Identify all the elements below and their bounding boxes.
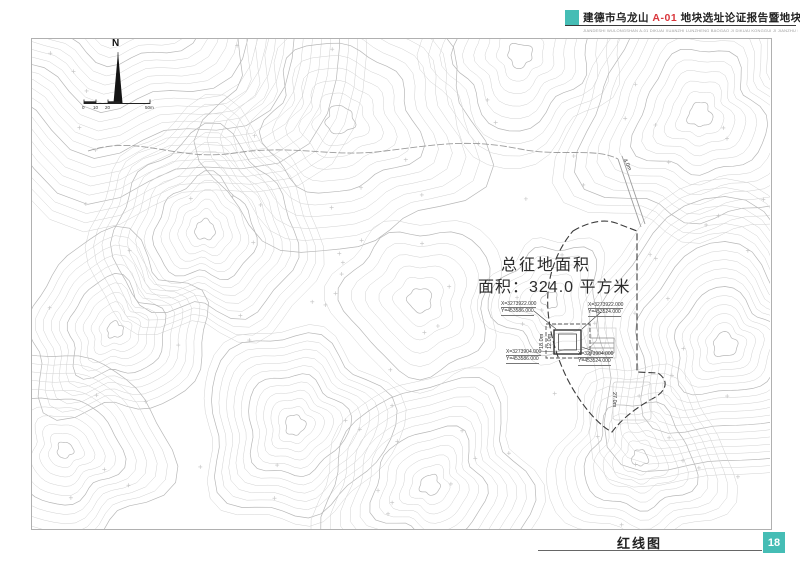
access-road — [88, 143, 645, 227]
survey-cross-marks — [48, 44, 766, 527]
header-accent-square — [565, 10, 579, 25]
site-plan-canvas — [0, 0, 800, 566]
title-suffix: 地块选址论证报告暨地块控规及建筑设计方案 — [681, 12, 800, 24]
footer-rule — [538, 550, 762, 551]
land-area-title: 总征地面积 — [501, 251, 591, 275]
scale-label-10: 10 — [93, 105, 98, 110]
corner-coordinate-se: X=3273904.000 Y=453524.000 — [578, 351, 613, 366]
corner-coordinate-ne: X=3273922.000 Y=453524.000 — [588, 302, 623, 317]
corner-coordinate-nw: X=3273922.000 Y=453586.000 — [501, 301, 536, 316]
dimension-edge: 27.0m — [611, 392, 617, 407]
scale-label-0: 0 — [82, 105, 85, 110]
header-rule — [565, 25, 796, 26]
document-title: 建德市乌龙山 A-01 地块选址论证报告暨地块控规及建筑设计方案 — [583, 10, 798, 25]
corner-coordinate-sw: X=3273904.000 Y=453586.000 — [506, 349, 541, 364]
page-number-badge: 18 — [763, 532, 785, 553]
north-label: N — [112, 38, 119, 49]
scale-label-50: 50m — [145, 105, 154, 110]
document-subtitle: JIANDESHI WULONGSHAN A-01 DIKUAI XUANZHI… — [583, 28, 798, 33]
dimension-depth: 12.0m — [547, 334, 553, 349]
scale-label-20: 20 — [105, 105, 110, 110]
title-prefix: 建德市乌龙山 — [583, 12, 649, 24]
north-arrow-icon — [114, 52, 123, 103]
title-code: A-01 — [652, 12, 677, 24]
land-area-value: 面积：324.0 平方米 — [478, 273, 631, 297]
dimension-width: 18.0m — [539, 334, 545, 349]
drawing-sheet: 建德市乌龙山 A-01 地块选址论证报告暨地块控规及建筑设计方案 JIANDES… — [0, 0, 800, 566]
